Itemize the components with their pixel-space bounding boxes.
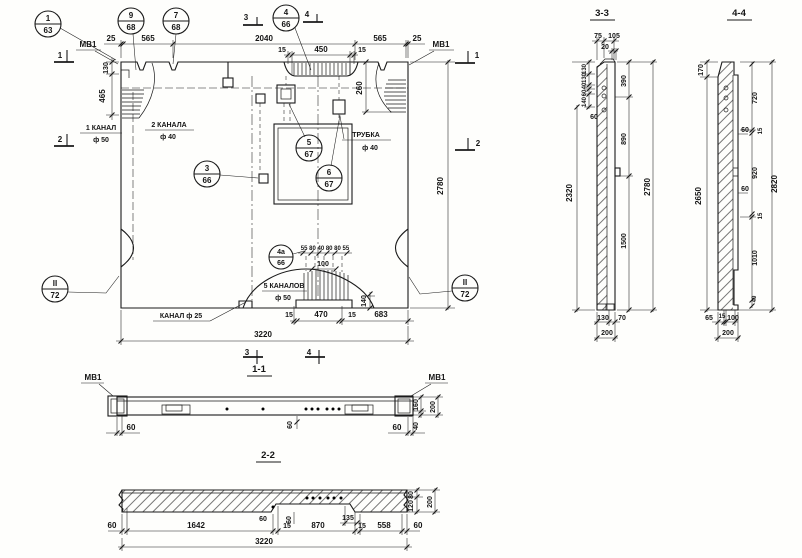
section-marker: 4 [305, 348, 325, 364]
dim-text: 1500 [621, 233, 628, 249]
dim-text: 100 [317, 261, 329, 268]
section-marker: 3 [243, 348, 263, 364]
dim-text: 135 [342, 515, 354, 522]
dim-text: 2780 [643, 178, 652, 196]
dim-text: 60 [259, 516, 267, 523]
detail-bubble: II 72 [452, 275, 478, 301]
dim-text: 60 [127, 423, 136, 432]
dim-text: 60 [582, 89, 588, 96]
dim-text: 140 [361, 295, 368, 307]
label-text: МВ1 [429, 373, 446, 382]
bubble-sheet: 67 [305, 150, 314, 159]
detail-bubble: 1 63 [35, 11, 61, 37]
bubble-sheet: 68 [172, 23, 181, 32]
dim-text: 2040 [255, 34, 273, 43]
section-1-1: 1-1 МВ1 МВ1 60 60 60 160 40 200 [81, 364, 448, 436]
detail-bubble: II 72 [42, 276, 68, 302]
marker-num: 3 [245, 348, 250, 357]
dim-text: 465 [98, 89, 107, 103]
dim-text: 3220 [254, 330, 272, 339]
bubble-num: 7 [174, 11, 179, 20]
label-text: ТРУБКА [352, 132, 380, 139]
dim-text: 260 [355, 81, 364, 95]
section-title: 4-4 [732, 8, 746, 19]
section-title: 1-1 [252, 364, 266, 375]
drawing-sheet: 25 565 2040 565 25 15 450 15 130 465 260… [0, 0, 802, 558]
dim-text: 170 [698, 64, 705, 76]
dim-text: 55 80 40 80 80 55 [301, 246, 350, 252]
bubble-sheet: 72 [461, 290, 470, 299]
dim-text: 60 [393, 423, 402, 432]
bubble-sheet: 66 [203, 176, 212, 185]
dim-text: 60 [741, 127, 749, 134]
dim-text: 130 [597, 315, 609, 322]
bubble-num: II [53, 279, 57, 288]
dim-text: 565 [141, 34, 155, 43]
dim-text: 70 [618, 315, 626, 322]
dim-text: 558 [377, 521, 391, 530]
s44-dims: 170 2650 720 15 920 15 1010 40 60 60 282… [694, 60, 779, 343]
section-title: 3-3 [595, 8, 609, 19]
dim-text: 200 [427, 496, 434, 508]
dim-text: 15 [285, 312, 293, 319]
section-marker: 4 [303, 10, 323, 22]
s11-body [108, 396, 413, 416]
dim-text: 15 [358, 47, 366, 54]
plan-labels: МВ1 МВ1 1 КАНАЛ ф 50 2 КАНАЛА ф 40 ТРУБК… [76, 40, 454, 321]
dim-text: 1642 [187, 521, 205, 530]
label-text: 5 КАНАЛОВ [264, 283, 305, 290]
marker-num: 2 [58, 135, 63, 144]
dim-text: 75 [594, 33, 602, 40]
label-text: 2 КАНАЛА [151, 122, 186, 129]
bubble-num: 4 [284, 8, 289, 17]
label-text: ф 50 [93, 137, 109, 144]
marker-num: 4 [305, 10, 310, 19]
dim-text: 130 [582, 72, 588, 83]
dim-text: 60 [286, 516, 293, 524]
dim-text: 80 [408, 491, 415, 499]
dim-text: 40 [582, 82, 588, 89]
detail-bubble: 7 68 [163, 8, 189, 34]
dim-text: 60 [414, 521, 423, 530]
dim-text: 200 [430, 401, 437, 413]
dim-text: 683 [374, 310, 388, 319]
label-text: 1 КАНАЛ [86, 125, 116, 132]
section-marker: 2 [455, 138, 481, 150]
bubble-sheet: 66 [277, 260, 285, 267]
detail-bubble: 4а 66 [269, 245, 293, 269]
dim-text: 890 [621, 133, 628, 145]
bubble-leaders [60, 28, 452, 294]
detail-bubble: 4 66 [273, 5, 299, 31]
dim-text: 60 [741, 186, 749, 193]
detail-bubble: 6 67 [316, 165, 342, 191]
dim-text: 2820 [770, 175, 779, 193]
marker-num: 1 [58, 51, 63, 60]
dim-text: 40 [752, 295, 758, 302]
bubble-num: 4а [277, 249, 285, 256]
section-marker: 1 [455, 51, 480, 63]
dim-text: 15 [348, 312, 356, 319]
label-text: МВ1 [433, 40, 450, 49]
dim-text: 200 [601, 330, 613, 337]
section-marker: 2 [54, 134, 74, 146]
panel-drawing-svg: 25 565 2040 565 25 15 450 15 130 465 260… [0, 0, 802, 558]
dim-text: 105 [608, 33, 620, 40]
dim-text: 15 [358, 523, 366, 530]
s22-body [119, 490, 408, 512]
s11-dims: МВ1 МВ1 60 60 60 160 40 200 [81, 373, 448, 436]
bubble-num: 1 [46, 14, 51, 23]
section-title: 2-2 [261, 450, 275, 461]
section-3-3: 3-3 75 105 20 130 130 40 60 140 60 2320 … [565, 8, 657, 342]
section-4-4: 4-4 170 2650 720 15 920 15 1010 40 60 60… [694, 8, 779, 342]
bubble-sheet: 66 [282, 20, 291, 29]
bubble-num: 3 [205, 164, 210, 173]
dim-text: 2650 [694, 187, 703, 205]
detail-bubble: 9 68 [118, 8, 144, 34]
label-text: КАНАЛ ф 25 [160, 313, 202, 320]
plan-view: 25 565 2040 565 25 15 450 15 130 465 260… [35, 5, 481, 364]
dim-text: 60 [108, 521, 117, 530]
plan-centerlines [121, 76, 408, 300]
dim-text: 920 [752, 167, 759, 179]
s44-body [718, 62, 738, 310]
bubble-sheet: 63 [44, 26, 53, 35]
bubble-num: 6 [327, 168, 332, 177]
marker-num: 1 [475, 51, 480, 60]
s33-body [597, 59, 620, 310]
dim-text: 720 [752, 92, 759, 104]
label-text: ф 50 [275, 295, 291, 302]
bubble-sheet: 72 [51, 291, 60, 300]
dim-text: 40 [413, 422, 420, 430]
dim-text: 15 [719, 314, 726, 320]
dim-text: 120 [408, 500, 415, 512]
marker-num: 2 [476, 139, 481, 148]
dim-text: 1010 [752, 250, 759, 266]
dim-text: 20 [601, 44, 609, 51]
bubble-sheet: 68 [127, 23, 136, 32]
dim-text: 60 [590, 114, 598, 121]
section-marker: 3 [243, 13, 263, 25]
plan-hatching [122, 63, 406, 300]
dim-text: 25 [413, 34, 422, 43]
dim-text: 15 [758, 127, 764, 134]
dim-text: 565 [373, 34, 387, 43]
section-2-2: 2-2 60 1642 60 15 870 15 558 60 135 60 3… [108, 450, 440, 551]
label-text: ф 40 [362, 145, 378, 152]
dim-text: 870 [311, 521, 325, 530]
marker-num: 3 [244, 13, 249, 22]
dim-text: 65 [705, 315, 713, 322]
bubble-num: 9 [129, 11, 134, 20]
detail-bubble: 3 66 [194, 161, 220, 187]
dim-text: 100 [727, 315, 739, 322]
section-marker: 1 [54, 50, 74, 62]
dim-text: 2780 [436, 177, 445, 195]
dim-text: 15 [278, 47, 286, 54]
dim-text: 130 [582, 63, 588, 74]
section-markers: 3 4 3 4 1 2 1 2 [54, 10, 481, 364]
label-text: ф 40 [160, 134, 176, 141]
dim-text: 160 [413, 399, 420, 411]
detail-bubble: 5 67 [296, 135, 322, 161]
dim-text: 3220 [255, 537, 273, 546]
dim-text: 60 [287, 421, 294, 429]
s33-dims: 75 105 20 130 130 40 60 140 60 2320 390 … [565, 33, 657, 342]
dim-text: 200 [722, 330, 734, 337]
marker-num: 4 [307, 348, 312, 357]
dim-text: 25 [107, 34, 116, 43]
bubble-num: II [463, 278, 467, 287]
dim-text: 470 [314, 310, 328, 319]
dim-text: 130 [103, 62, 110, 74]
dim-text: 15 [758, 212, 764, 219]
dim-text: 2320 [565, 184, 574, 202]
bubble-sheet: 67 [325, 180, 334, 189]
detail-bubbles: 1 63 9 68 7 68 4 66 3 66 [35, 5, 478, 302]
bubble-num: 5 [307, 138, 312, 147]
dim-text: 450 [314, 45, 328, 54]
label-text: МВ1 [85, 373, 102, 382]
dim-text: 140 [582, 96, 588, 107]
dim-text: 390 [621, 75, 628, 87]
